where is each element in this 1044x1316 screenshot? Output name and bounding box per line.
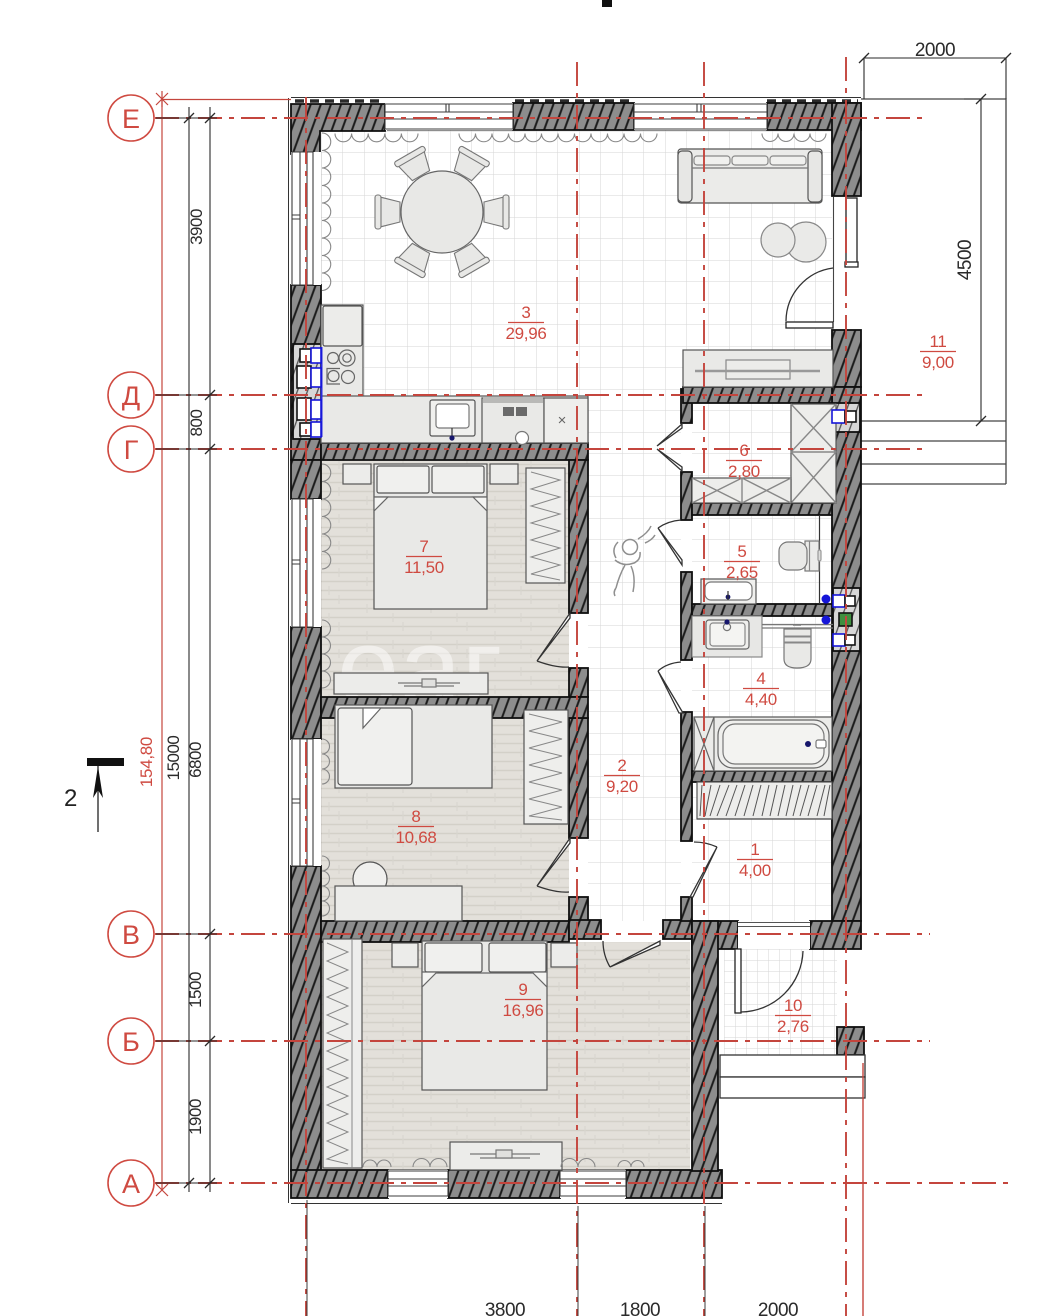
svg-text:11,50: 11,50 [404, 558, 444, 577]
svg-text:2: 2 [617, 756, 626, 775]
svg-text:3800: 3800 [485, 1300, 525, 1316]
svg-text:3: 3 [521, 303, 530, 322]
svg-text:15000: 15000 [164, 736, 183, 781]
svg-text:7: 7 [419, 537, 428, 556]
svg-text:2,80: 2,80 [728, 462, 760, 481]
svg-text:Е: Е [122, 104, 140, 134]
svg-text:1: 1 [750, 840, 759, 859]
svg-text:×: × [558, 412, 567, 429]
svg-text:3900: 3900 [187, 209, 206, 245]
svg-text:16,96: 16,96 [502, 1001, 543, 1020]
svg-text:6: 6 [739, 441, 748, 460]
svg-text:А: А [122, 1169, 140, 1199]
svg-text:154,80: 154,80 [137, 737, 156, 787]
svg-text:4500: 4500 [955, 240, 976, 280]
svg-text:9,00: 9,00 [922, 353, 954, 372]
svg-text:В: В [122, 920, 140, 950]
svg-text:29,96: 29,96 [505, 324, 546, 343]
svg-text:Г: Г [124, 435, 139, 465]
svg-text:10,68: 10,68 [395, 828, 436, 847]
svg-text:8: 8 [411, 807, 420, 826]
svg-text:4,40: 4,40 [745, 690, 777, 709]
svg-text:2,65: 2,65 [726, 563, 758, 582]
svg-text:2000: 2000 [758, 1300, 798, 1316]
svg-text:10: 10 [784, 996, 802, 1015]
svg-text:1900: 1900 [186, 1099, 205, 1135]
svg-text:4: 4 [756, 669, 765, 688]
svg-text:9: 9 [518, 980, 527, 999]
svg-text:4,00: 4,00 [739, 861, 771, 880]
svg-text:2,76: 2,76 [777, 1017, 809, 1036]
svg-text:Б: Б [122, 1027, 140, 1057]
svg-text:800: 800 [187, 410, 206, 437]
svg-text:5: 5 [737, 542, 746, 561]
svg-text:2: 2 [64, 785, 77, 812]
svg-text:11: 11 [929, 332, 946, 351]
svg-text:2000: 2000 [915, 40, 955, 61]
svg-text:1500: 1500 [186, 972, 205, 1008]
svg-text:9,20: 9,20 [606, 777, 638, 796]
svg-text:Д: Д [122, 381, 140, 411]
svg-text:1800: 1800 [620, 1300, 660, 1316]
svg-text:6800: 6800 [186, 742, 205, 778]
